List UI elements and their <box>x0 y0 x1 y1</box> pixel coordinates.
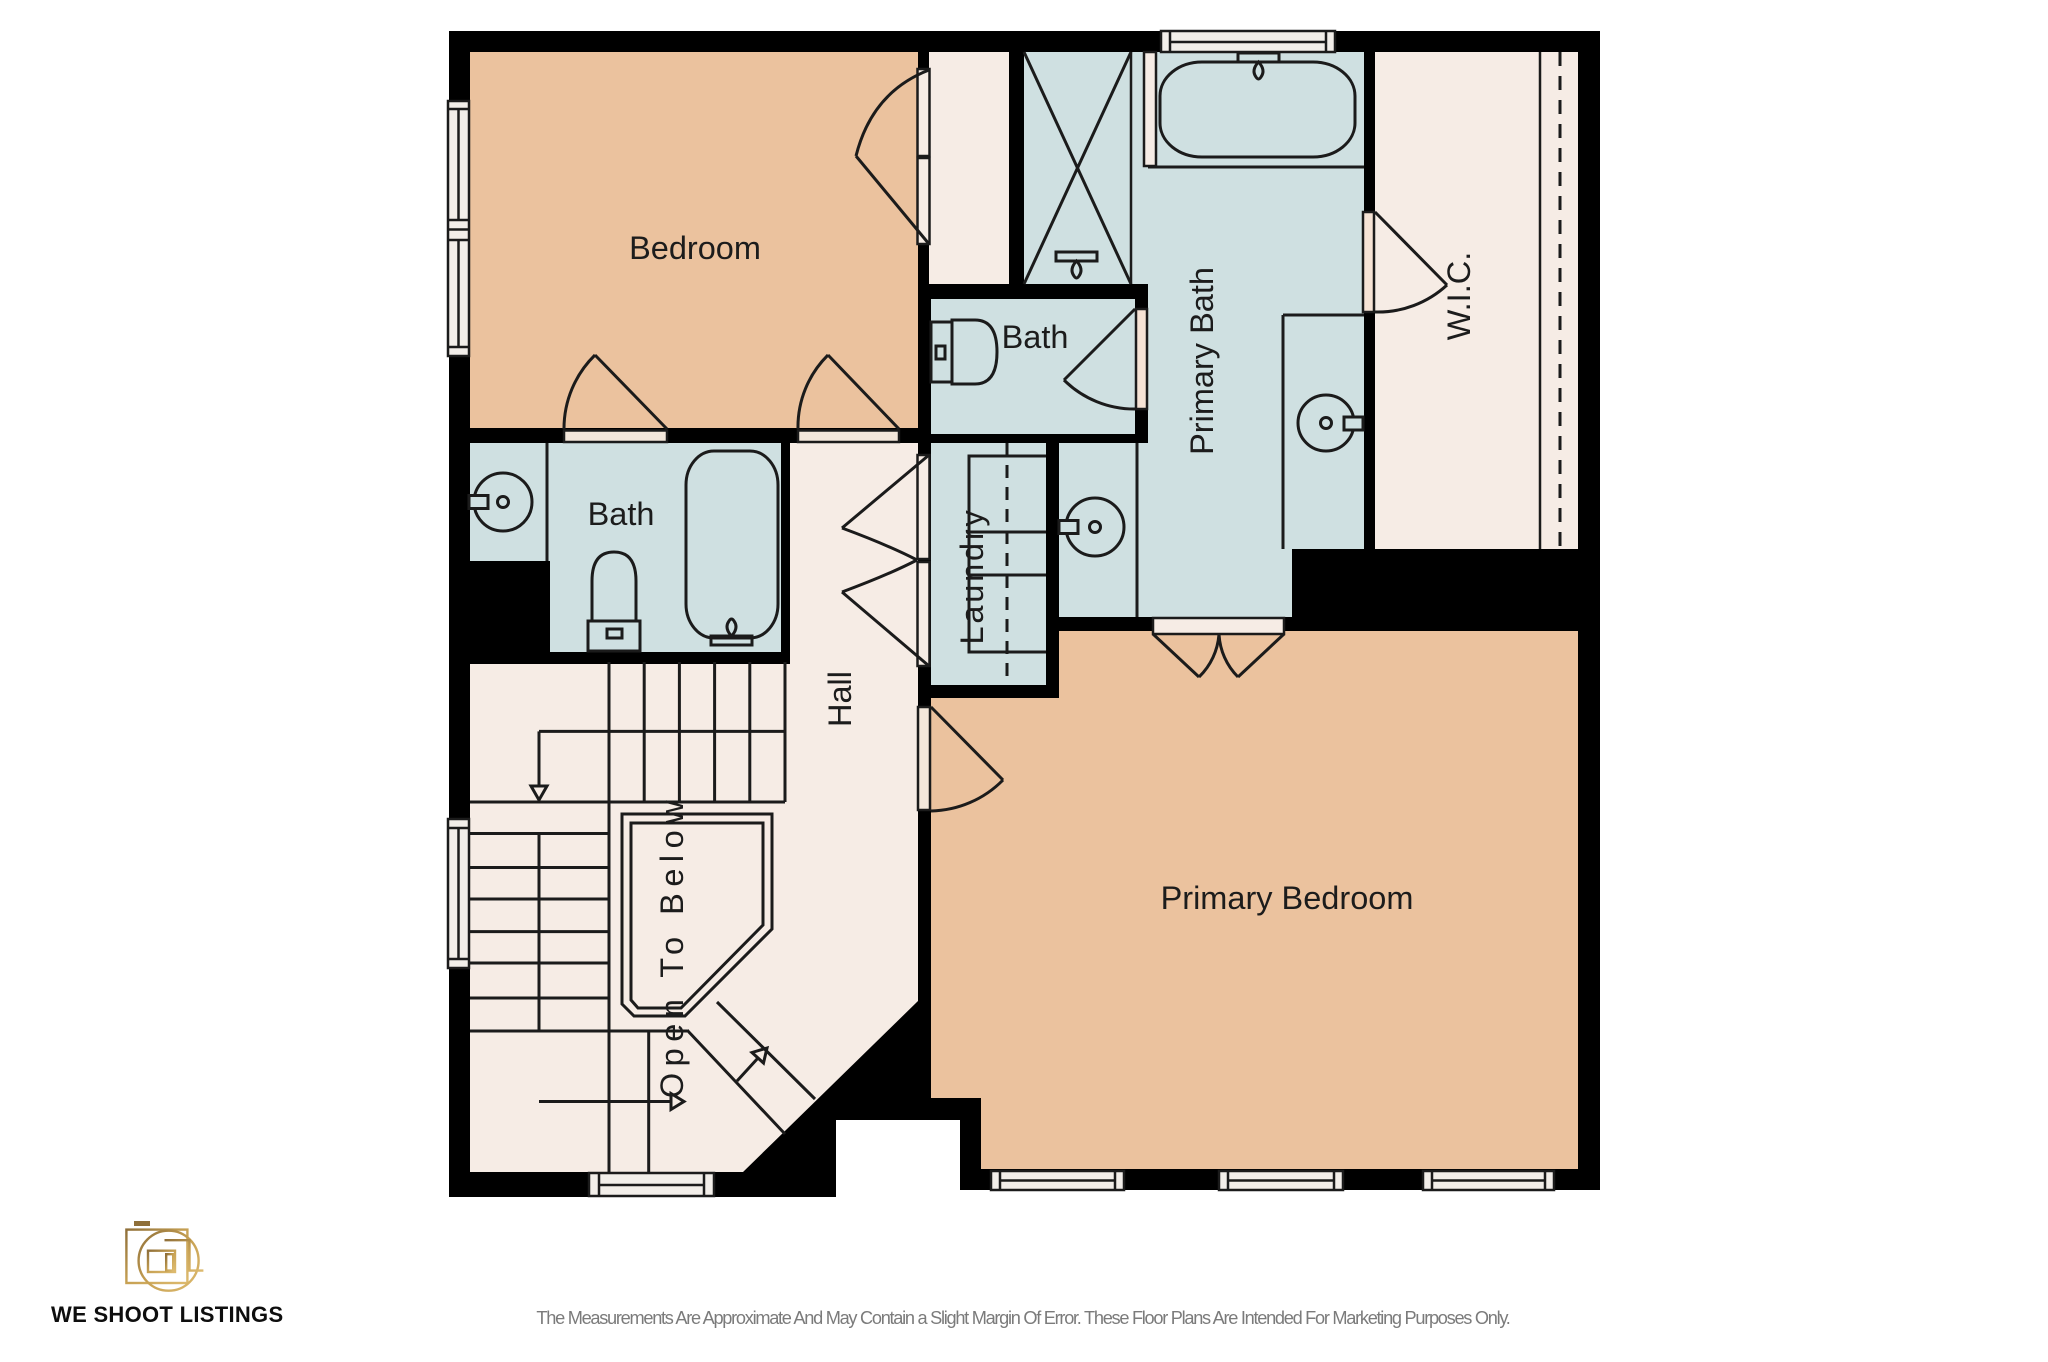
svg-text:W.I.C.: W.I.C. <box>1441 252 1477 340</box>
svg-text:Bedroom: Bedroom <box>629 230 761 266</box>
svg-text:Primary Bedroom: Primary Bedroom <box>1161 880 1414 916</box>
svg-text:Hall: Hall <box>822 671 858 727</box>
svg-text:The Measurements Are Approxima: The Measurements Are Approximate And May… <box>536 1308 1509 1328</box>
svg-text:Bath: Bath <box>1002 319 1069 355</box>
svg-text:WE SHOOT LISTINGS: WE SHOOT LISTINGS <box>51 1302 283 1327</box>
svg-text:Open To Below: Open To Below <box>654 794 690 1098</box>
svg-text:Laundry: Laundry <box>954 507 990 644</box>
svg-text:Primary Bath: Primary Bath <box>1184 267 1220 455</box>
svg-text:Bath: Bath <box>588 496 655 532</box>
